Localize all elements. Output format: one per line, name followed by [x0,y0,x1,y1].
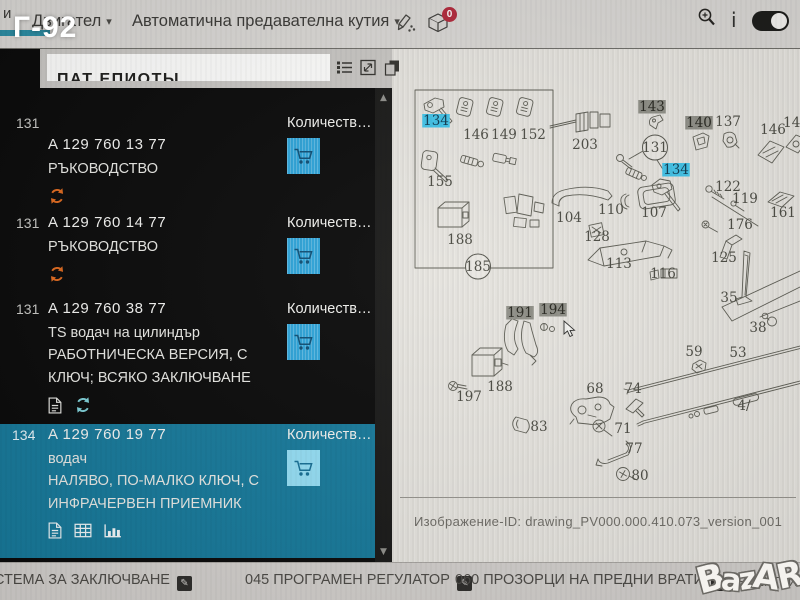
clipped-tab-fragment[interactable]: и [3,5,11,22]
part-number: A 129 760 13 77 [48,136,283,153]
part-description: КЛЮЧ; ВСЯКО ЗАКЛЮЧВАНЕ [48,367,283,389]
part-callout-140[interactable]: 140 [685,115,713,131]
callout-number: 131 [16,115,39,131]
part-description: НАЛЯВО, ПО-МАЛКО КЛЮЧ, С [48,470,283,492]
part-callout-137[interactable]: 137 [715,114,741,130]
part-callout-71[interactable]: 71 [614,421,631,437]
parts-row-2[interactable]: 131 A 129 760 14 77 РЪКОВОДСТВО [0,212,375,298]
clipped-header-text: ПАТ ЕПИОТЫ [57,71,180,81]
part-callout-176[interactable]: 176 [727,217,753,233]
svg-text:191: 191 [507,305,533,321]
parts-row-1[interactable]: 131 A 129 760 13 77 РЪКОВОДСТВО [0,88,375,212]
scroll-up-icon[interactable]: ▲ [375,93,392,103]
part-callout-161[interactable]: 161 [770,205,796,221]
svg-text:83: 83 [530,419,547,435]
add-to-cart-button[interactable] [287,450,320,486]
part-callout-155[interactable]: 155 [427,174,453,190]
svg-text:161: 161 [770,205,796,221]
exchange-part-icon [48,187,66,205]
part-callout-53[interactable]: 53 [729,345,746,361]
epc-app-screenshot: и Двигател▾ Автоматична предавателна кут… [0,0,800,600]
svg-text:197: 197 [456,389,482,405]
svg-text:143: 143 [639,99,665,115]
part-callout-134[interactable]: 134 [422,113,450,129]
diagram-line-art [415,90,800,481]
image-id-text: Изображение-ID: drawing_PV000.000.410.07… [414,514,782,529]
svg-text:116: 116 [650,266,676,282]
add-to-cart-button[interactable] [287,138,320,174]
quantity-label: Количеств… [287,301,373,317]
part-description: РЪКОВОДСТВО [48,158,283,180]
part-callout-113[interactable]: 113 [606,256,632,272]
svg-text:149: 149 [491,127,517,143]
part-callout-188[interactable]: 188 [487,379,513,395]
svg-text:203: 203 [572,137,598,153]
svg-text:77: 77 [625,441,642,457]
svg-text:146: 146 [760,122,786,138]
svg-text:35: 35 [720,290,737,306]
part-callout-134[interactable]: 134 [662,162,690,178]
parts-rows: 131 A 129 760 13 77 РЪКОВОДСТВО [0,88,375,562]
part-description: водач [48,448,283,470]
exploded-parts-diagram[interactable]: 1341461491521551881852031431401371311341… [392,55,800,495]
quantity-label: Количеств… [287,215,373,231]
part-callout-149[interactable]: 149 [783,115,800,131]
parts-list-panel: ПАТ ЕПИОТЫ [0,48,392,562]
svg-text:38: 38 [749,320,766,336]
part-callout-143[interactable]: 143 [638,99,666,115]
svg-text:176: 176 [727,217,753,233]
svg-text:188: 188 [487,379,513,395]
part-callout-38[interactable]: 38 [749,320,766,336]
toggle-knob [771,13,787,29]
part-callout-146[interactable]: 146 [463,127,489,143]
basket-package-icon[interactable]: 0 [427,13,450,34]
parts-list-header: ПАТ ЕПИОТЫ [0,48,392,88]
svg-text:137: 137 [715,114,741,130]
add-to-cart-button[interactable] [287,324,320,360]
svg-text:194: 194 [540,302,566,318]
svg-text:188: 188 [447,232,473,248]
part-callout-188[interactable]: 188 [447,232,473,248]
part-callout-35[interactable]: 35 [720,290,737,306]
svg-text:71: 71 [614,421,631,437]
svg-text:53: 53 [729,345,746,361]
part-callout-80[interactable]: 80 [631,468,648,484]
svg-text:119: 119 [732,191,758,207]
part-callout-68[interactable]: 68 [586,381,603,397]
part-callout-110[interactable]: 110 [598,202,624,218]
part-callout-107[interactable]: 107 [641,205,667,221]
part-callout-146[interactable]: 146 [760,122,786,138]
svg-text:104: 104 [556,210,582,226]
zoom-in-icon[interactable] [697,7,717,28]
svg-text:155: 155 [427,174,453,190]
part-callout-125[interactable]: 125 [711,250,737,266]
part-description: РАБОТНИЧЕСКА ВЕРСИЯ, С [48,344,283,366]
part-callout-128[interactable]: 128 [584,229,610,245]
fullscreen-icon[interactable] [360,59,377,76]
table-icon[interactable] [74,523,92,538]
part-number: A 129 760 14 77 [48,214,283,231]
copy-pages-icon[interactable] [384,59,401,76]
part-callout-194[interactable]: 194 [539,302,567,318]
part-callout-59[interactable]: 59 [685,344,702,360]
edit-icon[interactable]: ✎ [177,576,192,591]
bar-chart-icon[interactable] [104,523,122,538]
part-callout-152[interactable]: 152 [520,127,546,143]
part-callout-77[interactable]: 77 [625,441,642,457]
callout-number: 131 [16,301,39,317]
part-callout-4/[interactable]: 4/ [737,398,751,414]
svg-text:146: 146 [463,127,489,143]
svg-text:128: 128 [584,229,610,245]
part-callout-131[interactable]: 131 [642,135,668,160]
quantity-label: Количеств… [287,427,373,443]
header-edge [0,48,40,88]
svg-text:107: 107 [641,205,667,221]
marker-pen-icon[interactable] [396,12,418,36]
tab-transmission[interactable]: Автоматична предавателна кутия▾ [132,12,400,31]
parts-filter-field[interactable]: ПАТ ЕПИОТЫ [47,54,330,81]
list-view-icon[interactable] [336,59,353,76]
svg-text:140: 140 [686,115,712,131]
svg-text:110: 110 [598,202,624,218]
svg-text:80: 80 [631,468,648,484]
mouse-cursor [564,321,575,337]
part-callout-149[interactable]: 149 [491,127,517,143]
subgroup-nav-bar: СТЕМА ЗА ЗАКЛЮЧВАНЕ✎ 045 ПРОГРАМЕН РЕГУЛ… [0,562,800,600]
part-callout-74[interactable]: 74 [624,381,641,397]
chevron-down-icon: ▾ [106,16,112,28]
svg-text:4/: 4/ [737,398,751,414]
document-icon[interactable] [48,522,62,539]
diagram-footer-divider [400,497,796,498]
nav-item-locking-system[interactable]: СТЕМА ЗА ЗАКЛЮЧВАНЕ✎ [0,572,192,591]
add-to-cart-button[interactable] [287,238,320,274]
svg-text:113: 113 [606,256,632,272]
scroll-down-icon[interactable]: ▼ [375,547,392,557]
part-description: TS водач на цилиндър [48,322,283,344]
svg-text:149: 149 [783,115,800,131]
svg-text:74: 74 [624,381,641,397]
svg-text:131: 131 [642,140,668,156]
parts-row-3[interactable]: 131 A 129 760 38 77 TS водач на цилиндър… [0,298,375,424]
info-icon[interactable]: i [731,8,737,32]
photo-label-overlay: Г-92 [13,11,77,45]
part-callout-197[interactable]: 197 [456,389,482,405]
nav-item-program-regulator[interactable]: 045 ПРОГРАМЕН РЕГУЛАТОР✎ [245,572,472,591]
view-toggle[interactable] [752,11,789,31]
diagram-panel: 1341461491521551881852031431401371311341… [392,48,800,562]
part-description: ИНФРАЧЕРВЕН ПРИЕМНИК [48,493,283,515]
sidebar-scrollbar[interactable]: ▲ ▼ [375,88,392,562]
part-callout-203[interactable]: 203 [572,137,598,153]
document-icon[interactable] [48,397,62,414]
part-description: РЪКОВОДСТВО [48,236,283,258]
svg-text:59: 59 [685,344,702,360]
callout-number: 131 [16,215,39,231]
svg-text:68: 68 [586,381,603,397]
refresh-icon[interactable] [74,396,92,414]
parts-row-4-selected[interactable]: 134 A 129 760 19 77 водач НАЛЯВО, ПО-МАЛ… [0,424,375,558]
nav-item-front-door-windows[interactable]: 060 ПРОЗОРЦИ НА ПРЕДНИ ВРАТИ✎ [455,572,726,591]
svg-text:152: 152 [520,127,546,143]
part-callout-116[interactable]: 116 [650,266,676,282]
bazar-watermark: BazAR [696,554,800,600]
toolbar: и Двигател▾ Автоматична предавателна кут… [0,0,800,49]
basket-count-badge: 0 [442,7,457,22]
svg-text:185: 185 [465,259,491,275]
callout-number: 134 [12,427,35,443]
part-callout-83[interactable]: 83 [530,419,547,435]
part-callout-185[interactable]: 185 [465,254,491,279]
svg-text:134: 134 [423,113,449,129]
part-number: A 129 760 19 77 [48,426,283,443]
svg-text:134: 134 [663,162,689,178]
part-callout-119[interactable]: 119 [732,191,758,207]
part-callout-191[interactable]: 191 [506,305,534,321]
part-number: A 129 760 38 77 [48,300,283,317]
svg-text:125: 125 [711,250,737,266]
exchange-part-icon [48,265,66,283]
part-callout-104[interactable]: 104 [556,210,582,226]
quantity-label: Количеств… [287,115,373,131]
